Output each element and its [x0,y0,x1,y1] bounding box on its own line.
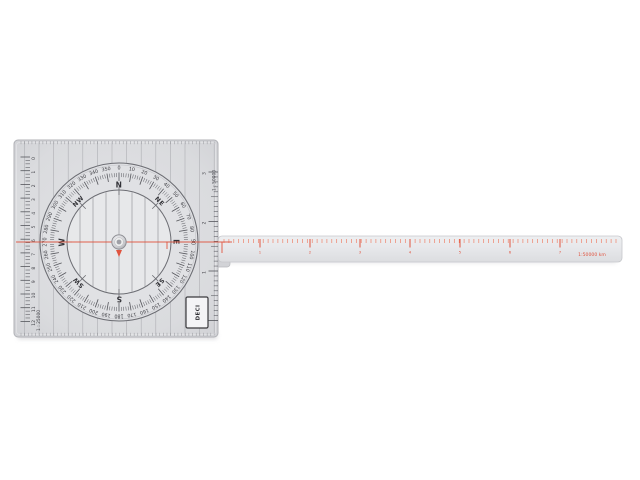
dial-degree-label: 10 [128,166,135,173]
ruler-arm: 1234567 1:50000 km [218,236,622,262]
dial-degree-label: 80 [188,226,195,233]
right-ruler-number: 2 [202,221,208,224]
left-ruler-number: 3 [31,198,37,201]
dial-cardinal-s: S [116,295,122,304]
left-ruler-number: 0 [31,157,37,160]
left-ruler-number: 8 [31,267,37,270]
dial-degree-label: 180 [114,313,123,319]
left-ruler-number: 7 [31,253,37,256]
left-ruler-number: 11 [31,306,37,312]
plotter-illustration: 1234567 1:50000 km 0123456789101112 0123… [0,0,640,480]
left-ruler-number: 12 [31,320,37,326]
left-ruler-number: 9 [31,280,37,283]
product-photo: 1234567 1:50000 km 0123456789101112 0123… [0,0,640,480]
arm-scale-label: 1:50000 km [578,252,606,258]
left-ruler-number: 2 [31,184,37,187]
pivot-grommet [112,235,126,249]
right-ruler-number: 1 [202,271,208,274]
left-ruler-number: 5 [31,225,37,228]
left-ruler-number: 1 [31,171,37,174]
brand-text: DECI [196,305,202,321]
brand-badge: DECI [186,297,208,328]
dial-degree-label: 0 [117,166,120,172]
left-ruler-number: 4 [31,212,37,215]
left-ruler-number: 10 [31,293,37,299]
dial-cardinal-n: N [116,181,123,190]
left-scale-label: 1 : 25000 [36,310,42,331]
right-scale-label: 1 : 50000 [212,170,218,191]
right-ruler-number: 3 [202,172,208,175]
grommet-hole [117,240,122,245]
